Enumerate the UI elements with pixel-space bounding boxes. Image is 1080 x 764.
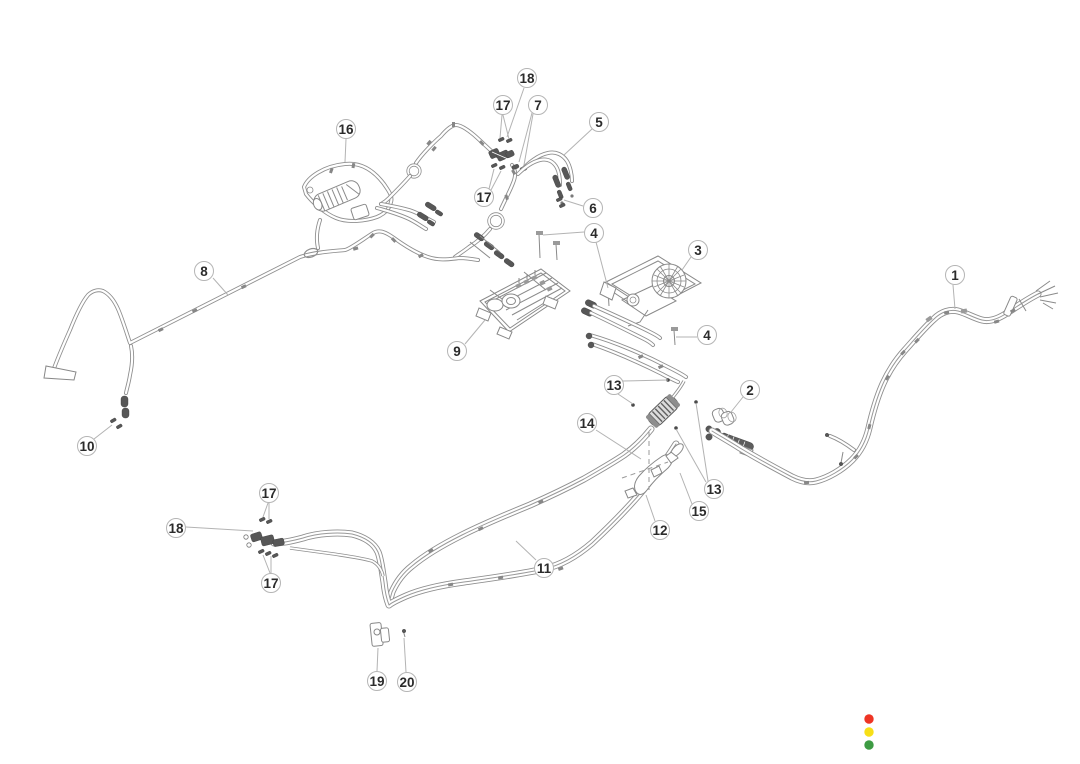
svg-text:17: 17 (476, 190, 491, 205)
svg-text:11: 11 (537, 561, 552, 576)
svg-text:18: 18 (519, 71, 535, 86)
svg-text:13: 13 (706, 482, 722, 497)
svg-text:14: 14 (579, 416, 595, 431)
svg-text:19: 19 (369, 674, 384, 689)
svg-text:6: 6 (589, 201, 597, 216)
svg-text:17: 17 (263, 576, 278, 591)
svg-text:12: 12 (652, 523, 667, 538)
svg-text:13: 13 (606, 378, 622, 393)
svg-text:10: 10 (79, 439, 94, 454)
svg-text:17: 17 (261, 486, 276, 501)
svg-text:3: 3 (694, 243, 702, 258)
svg-text:2: 2 (746, 383, 754, 398)
svg-text:5: 5 (595, 115, 603, 130)
svg-text:16: 16 (338, 122, 354, 137)
svg-text:17: 17 (495, 98, 510, 113)
svg-text:20: 20 (399, 675, 414, 690)
svg-text:18: 18 (168, 521, 184, 536)
svg-text:4: 4 (590, 226, 598, 241)
svg-text:4: 4 (703, 328, 711, 343)
svg-text:15: 15 (691, 504, 707, 519)
svg-text:9: 9 (453, 344, 461, 359)
svg-text:7: 7 (534, 98, 542, 113)
svg-text:1: 1 (951, 268, 959, 283)
svg-text:8: 8 (200, 264, 208, 279)
